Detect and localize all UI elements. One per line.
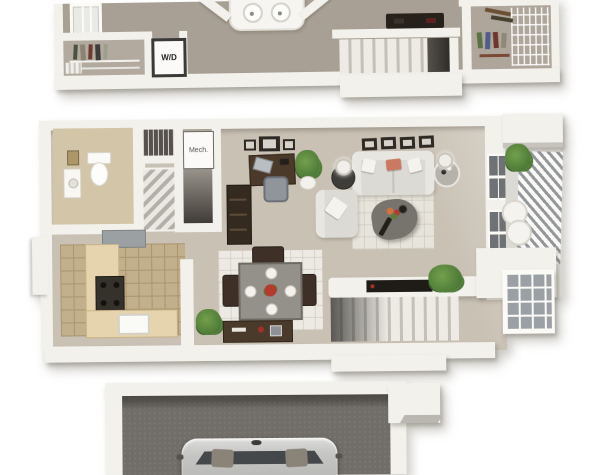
kitchen-sink — [118, 314, 150, 335]
washer-dryer-unit: W/D — [151, 38, 187, 78]
plate — [265, 267, 277, 279]
shelf-item — [485, 8, 511, 17]
wall-art-frame — [419, 135, 435, 148]
garage-wall-top — [105, 381, 407, 396]
plant-office — [295, 150, 320, 179]
bookshelf — [226, 185, 252, 245]
centerpiece — [264, 284, 276, 296]
garage-roof-wing — [388, 383, 440, 423]
office-chair — [263, 176, 288, 202]
lamp-left — [335, 158, 352, 175]
table-decor — [378, 217, 392, 237]
plant-balcony — [505, 144, 531, 172]
main-floor: Mech. — [39, 113, 570, 373]
sideboard-item — [258, 326, 264, 332]
wire-shelving — [511, 7, 550, 66]
bookshelf-shelf — [230, 229, 247, 231]
lamp-right — [437, 152, 453, 168]
dresser-detail — [426, 18, 436, 23]
sofa-pillow-white — [361, 158, 376, 173]
wall-art-frame — [244, 139, 256, 150]
balcony-roof — [503, 113, 563, 148]
sofa-pillow-white — [407, 157, 423, 173]
entry-porch-bump — [32, 237, 49, 295]
stair-wall-console — [366, 280, 432, 293]
sink-drain — [278, 11, 282, 15]
burner — [101, 300, 107, 306]
mech-wall-bottom — [175, 223, 222, 232]
plant-dining — [196, 309, 222, 335]
kitchen-wall-right — [180, 259, 194, 347]
car-roof-detail — [285, 448, 308, 467]
car-hood-badge — [251, 440, 261, 445]
garage-wall-left — [105, 383, 123, 475]
bathroom — [53, 128, 134, 229]
wall-art-frame — [283, 139, 295, 150]
sink-left — [243, 3, 263, 23]
car — [181, 438, 337, 475]
armchair-back — [315, 190, 325, 238]
clothes-item — [477, 32, 483, 48]
art-canvas — [384, 140, 393, 147]
upper-wall-stair-bump — [340, 74, 462, 98]
art-canvas — [285, 142, 292, 148]
console-detail — [370, 284, 374, 288]
sink — [68, 178, 78, 188]
bay-window — [502, 269, 555, 334]
bookshelf-shelf — [230, 199, 247, 201]
sofa — [352, 151, 434, 196]
wall-art-frame — [400, 137, 416, 150]
car-mirror-left — [177, 455, 184, 460]
roof-wing-shade — [400, 415, 443, 423]
dining-table — [238, 262, 303, 321]
clothes-item — [501, 33, 507, 48]
burner — [113, 282, 119, 288]
upper-stairs — [339, 38, 428, 73]
clothes-item — [493, 32, 499, 48]
wall-art-frame — [362, 138, 378, 151]
art-canvas — [365, 141, 374, 148]
garage-wall-shadow — [122, 394, 390, 410]
burner — [100, 282, 106, 288]
balcony-chair — [506, 220, 532, 246]
table-item — [441, 170, 446, 175]
upper-floor: W/D — [54, 0, 560, 90]
stove — [95, 276, 124, 312]
bay-window-panes — [505, 272, 552, 330]
desk-item — [280, 159, 289, 165]
dresser — [386, 13, 444, 29]
art-canvas — [263, 140, 276, 148]
car-mirror-right — [336, 454, 343, 459]
bathroom-art — [67, 150, 79, 165]
main-stairs-down — [331, 296, 459, 341]
mech-label: Mech. — [189, 146, 208, 153]
storage-basket — [66, 63, 82, 74]
plate — [266, 303, 278, 315]
upper-closet-right — [471, 5, 552, 69]
sofa-pillow-accent — [386, 158, 402, 171]
art-canvas — [422, 138, 431, 145]
sideboard — [223, 320, 293, 343]
burner — [114, 300, 120, 306]
sink-drain — [250, 12, 254, 16]
stairwell-opening — [427, 38, 450, 72]
upper-closet-left — [63, 40, 145, 76]
bathroom-vanity — [63, 168, 81, 198]
clothes-item — [485, 32, 491, 49]
armchair-pillow — [324, 196, 348, 220]
art-canvas — [403, 139, 412, 146]
stairs-shadow — [331, 296, 459, 341]
clothes-item — [95, 44, 101, 60]
wall-art-frame — [259, 136, 280, 151]
sink-right — [271, 2, 291, 22]
mech-room-floor — [183, 167, 213, 223]
vanity-double-sink — [229, 0, 306, 31]
plate — [284, 285, 296, 297]
car-roof-detail — [211, 449, 234, 468]
plate — [244, 286, 256, 298]
sideboard-item — [232, 328, 246, 332]
clothes-item — [103, 44, 108, 59]
mech-unit: Mech. — [183, 131, 214, 169]
plant-pot — [299, 176, 316, 190]
clothes-item — [80, 44, 86, 60]
armchair — [315, 189, 358, 237]
dresser-detail — [394, 18, 404, 23]
wall-art-frame — [381, 137, 397, 150]
toilet-bowl — [90, 162, 108, 186]
bookshelf-shelf — [230, 214, 247, 216]
washer-dryer-label: W/D — [161, 53, 177, 62]
plant-stairs — [428, 264, 462, 292]
floorplan-render: W/D — [0, 0, 600, 475]
art-canvas — [246, 142, 253, 148]
laptop — [253, 157, 274, 174]
clothes-item — [73, 45, 78, 60]
sideboard-item — [270, 325, 282, 336]
upper-stair-wall-right — [449, 38, 459, 72]
clothes-item — [88, 44, 93, 59]
main-wall-stair-bump — [331, 355, 446, 372]
shelf-item — [480, 54, 510, 57]
garage — [105, 381, 441, 475]
table-decor — [398, 204, 408, 214]
